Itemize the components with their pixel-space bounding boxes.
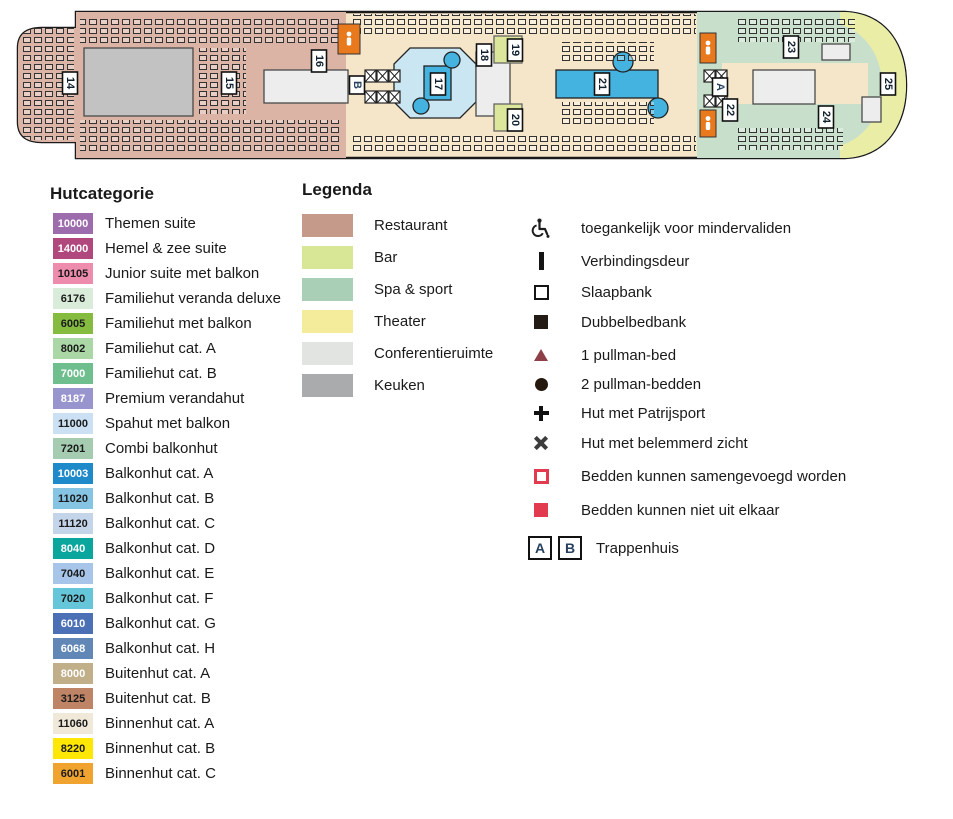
category-color-chip: 11120 — [53, 513, 93, 534]
category-row: 11120Balkonhut cat. C — [50, 511, 340, 536]
category-row: 8002Familiehut cat. A — [50, 336, 340, 361]
category-label: Balkonhut cat. F — [105, 590, 213, 607]
furniture-strip — [352, 136, 696, 154]
beds-fixed-icon — [528, 503, 554, 517]
legend-symbol-label: Bedden kunnen niet uit elkaar — [581, 502, 779, 519]
legend-symbol-label: Hut met belemmerd zicht — [581, 435, 748, 452]
legend-symbol-row: Hut met Patrijsport — [528, 401, 705, 425]
furniture-strip — [80, 120, 342, 154]
spa-block-1 — [753, 70, 815, 104]
category-color-chip: 6068 — [53, 638, 93, 659]
category-row: 6001Binnenhut cat. C — [50, 761, 340, 786]
legend-color-row: Conferentieruimte — [302, 341, 522, 366]
legend-color-row: Theater — [302, 309, 522, 334]
legend-symbol-label: Hut met Patrijsport — [581, 405, 705, 422]
category-row: 7201Combi balkonhut — [50, 436, 340, 461]
stairwell-b-box: B — [558, 536, 582, 560]
deck-marker-label: 16 — [313, 55, 325, 67]
person-icon — [347, 32, 352, 37]
legend-symbol-row: toegankelijk voor mindervaliden — [528, 216, 791, 240]
legend-color-chip — [302, 342, 353, 365]
furniture-strip — [352, 14, 696, 34]
legend-symbol-row: 1 pullman-bed — [528, 343, 676, 367]
category-color-chip: 7201 — [53, 438, 93, 459]
spa-block-2 — [822, 44, 850, 60]
deck-marker-label: 19 — [509, 44, 521, 56]
obstructed-view-icon — [528, 435, 554, 451]
category-color-chip: 11000 — [53, 413, 93, 434]
category-row: 6068Balkonhut cat. H — [50, 636, 340, 661]
category-color-chip: 8000 — [53, 663, 93, 684]
area-color-legend: Legenda RestaurantBarSpa & sportTheaterC… — [302, 180, 522, 405]
stairwell-a-box: A — [528, 536, 552, 560]
category-color-chip: 8002 — [53, 338, 93, 359]
category-label: Themen suite — [105, 215, 196, 232]
deck-marker-label: 18 — [478, 49, 490, 61]
legend-color-label: Theater — [374, 313, 426, 330]
pool-17-whirlpool-1 — [444, 52, 460, 68]
legend-symbol-label: toegankelijk voor mindervaliden — [581, 220, 791, 237]
category-row: 14000Hemel & zee suite — [50, 236, 340, 261]
legend-symbol-label: 2 pullman-bedden — [581, 376, 701, 393]
person-icon — [706, 116, 711, 121]
person-icon — [706, 122, 710, 130]
person-icon — [706, 41, 711, 46]
legend-symbol-row: 2 pullman-bedden — [528, 372, 701, 396]
stairwell-label: Trappenhuis — [596, 540, 679, 557]
category-label: Buitenhut cat. A — [105, 665, 210, 682]
sofa-bed-icon — [528, 285, 554, 300]
category-label: Hemel & zee suite — [105, 240, 227, 257]
legend-symbol-row: Verbindingsdeur — [528, 249, 689, 273]
legend-color-chip — [302, 278, 353, 301]
deck-marker-label: A — [714, 83, 726, 91]
deck-marker-label: 15 — [223, 77, 235, 89]
category-label: Balkonhut cat. C — [105, 515, 215, 532]
category-color-chip: 10105 — [53, 263, 93, 284]
symbol-legend: toegankelijk voor mindervalidenVerbindin… — [528, 210, 948, 580]
legend-symbol-label: Slaapbank — [581, 284, 652, 301]
category-label: Combi balkonhut — [105, 440, 218, 457]
category-color-chip: 14000 — [53, 238, 93, 259]
legend-title: Legenda — [302, 180, 522, 200]
category-row: 3125Buitenhut cat. B — [50, 686, 340, 711]
furniture-strip — [560, 102, 654, 126]
pool-17-whirlpool-2 — [413, 98, 429, 114]
category-label: Buitenhut cat. B — [105, 690, 211, 707]
category-row: 10000Themen suite — [50, 211, 340, 236]
deck-marker-label: 14 — [64, 77, 76, 90]
category-color-chip: 6010 — [53, 613, 93, 634]
legend-color-chip — [302, 310, 353, 333]
legend-symbol-row: Bedden kunnen samengevoegd worden — [528, 464, 846, 488]
category-label: Binnenhut cat. C — [105, 765, 216, 782]
legend-color-label: Bar — [374, 249, 397, 266]
category-color-chip: 11020 — [53, 488, 93, 509]
category-color-chip: 10003 — [53, 463, 93, 484]
legend-symbol-label: Bedden kunnen samengevoegd worden — [581, 468, 846, 485]
deck-marker-label: 21 — [596, 78, 608, 90]
category-color-chip: 7040 — [53, 563, 93, 584]
category-color-chip: 10000 — [53, 213, 93, 234]
category-color-chip: 8040 — [53, 538, 93, 559]
deck-marker-label: 20 — [509, 114, 521, 126]
legend-symbol-label: 1 pullman-bed — [581, 347, 676, 364]
category-label: Balkonhut cat. G — [105, 615, 216, 632]
category-row: 11020Balkonhut cat. B — [50, 486, 340, 511]
legend-symbol-row: Hut met belemmerd zicht — [528, 431, 748, 455]
category-label: Spahut met balkon — [105, 415, 230, 432]
legend-color-label: Restaurant — [374, 217, 447, 234]
beds-joinable-icon — [528, 469, 554, 484]
legend-color-row: Restaurant — [302, 213, 522, 238]
category-row: 8040Balkonhut cat. D — [50, 536, 340, 561]
category-row: 7040Balkonhut cat. E — [50, 561, 340, 586]
category-label: Premium verandahut — [105, 390, 244, 407]
category-label: Junior suite met balkon — [105, 265, 259, 282]
category-row: 7020Balkonhut cat. F — [50, 586, 340, 611]
category-color-chip: 3125 — [53, 688, 93, 709]
category-label: Balkonhut cat. E — [105, 565, 214, 582]
legend-color-label: Keuken — [374, 377, 425, 394]
connecting-door-icon — [528, 252, 554, 270]
cabin-category-list: 10000Themen suite14000Hemel & zee suite1… — [50, 211, 340, 786]
category-label: Balkonhut cat. D — [105, 540, 215, 557]
porthole-icon — [528, 406, 554, 421]
cabin-category-legend: Hutcategorie 10000Themen suite14000Hemel… — [50, 184, 340, 786]
legend-color-row: Bar — [302, 245, 522, 270]
double-sofa-bed-icon — [528, 315, 554, 329]
stairwell-legend-row: A B Trappenhuis — [528, 535, 679, 561]
category-color-chip: 7020 — [53, 588, 93, 609]
category-label: Familiehut cat. A — [105, 340, 216, 357]
legend-color-label: Spa & sport — [374, 281, 452, 298]
legend-symbol-label: Verbindingsdeur — [581, 253, 689, 270]
legend-color-row: Spa & sport — [302, 277, 522, 302]
deck-marker-label: B — [351, 81, 363, 89]
cabin-category-title: Hutcategorie — [50, 184, 340, 204]
legend-color-chip — [302, 374, 353, 397]
category-color-chip: 6176 — [53, 288, 93, 309]
category-row: 6010Balkonhut cat. G — [50, 611, 340, 636]
deck-marker-label: 22 — [724, 104, 736, 116]
category-row: 8220Binnenhut cat. B — [50, 736, 340, 761]
category-color-chip: 7000 — [53, 363, 93, 384]
deck-marker-label: 17 — [432, 78, 444, 90]
legend-symbol-label: Dubbelbedbank — [581, 314, 686, 331]
area-color-list: RestaurantBarSpa & sportTheaterConferent… — [302, 213, 522, 398]
category-row: 7000Familiehut cat. B — [50, 361, 340, 386]
legend-color-row: Keuken — [302, 373, 522, 398]
category-color-chip: 6005 — [53, 313, 93, 334]
deck-plan-page: { "ship": { "palette": { "deck": "#F6E6C… — [0, 0, 953, 819]
person-icon — [706, 47, 710, 55]
category-color-chip: 6001 — [53, 763, 93, 784]
category-label: Binnenhut cat. B — [105, 740, 215, 757]
deck-marker-label: 24 — [820, 111, 832, 124]
legend-symbol-row: Bedden kunnen niet uit elkaar — [528, 498, 779, 522]
category-label: Balkonhut cat. A — [105, 465, 213, 482]
category-row: 10003Balkonhut cat. A — [50, 461, 340, 486]
person-icon — [347, 38, 351, 46]
category-row: 8000Buitenhut cat. A — [50, 661, 340, 686]
one-pullman-icon — [528, 349, 554, 361]
kitchen-block — [84, 48, 193, 116]
theater-stage-block — [264, 70, 348, 103]
legend-symbol-row: Slaapbank — [528, 280, 652, 304]
category-label: Balkonhut cat. H — [105, 640, 215, 657]
wheelchair-icon — [528, 218, 554, 239]
category-row: 11060Binnenhut cat. A — [50, 711, 340, 736]
category-label: Balkonhut cat. B — [105, 490, 214, 507]
furniture-strip — [560, 42, 654, 64]
category-label: Familiehut cat. B — [105, 365, 217, 382]
category-row: 6005Familiehut met balkon — [50, 311, 340, 336]
legend-color-chip — [302, 214, 353, 237]
category-row: 6176Familiehut veranda deluxe — [50, 286, 340, 311]
deck-plan: 141516B1718192021A22232425 — [0, 0, 953, 172]
furniture-strip — [80, 16, 342, 44]
legend-symbol-row: Dubbelbedbank — [528, 310, 686, 334]
legend-color-chip — [302, 246, 353, 269]
deck-plan-svg: 141516B1718192021A22232425 — [0, 0, 953, 172]
deck-marker-label: 25 — [882, 78, 894, 90]
legend-color-label: Conferentieruimte — [374, 345, 493, 362]
two-pullman-icon — [528, 378, 554, 391]
spa-block-3 — [862, 97, 881, 122]
category-color-chip: 8220 — [53, 738, 93, 759]
deck-marker-label: 23 — [785, 41, 797, 53]
category-color-chip: 11060 — [53, 713, 93, 734]
category-label: Binnenhut cat. A — [105, 715, 214, 732]
category-label: Familiehut met balkon — [105, 315, 252, 332]
furniture-strip — [735, 128, 843, 150]
category-row: 8187Premium verandahut — [50, 386, 340, 411]
category-row: 10105Junior suite met balkon — [50, 261, 340, 286]
category-label: Familiehut veranda deluxe — [105, 290, 281, 307]
category-color-chip: 8187 — [53, 388, 93, 409]
category-row: 11000Spahut met balkon — [50, 411, 340, 436]
